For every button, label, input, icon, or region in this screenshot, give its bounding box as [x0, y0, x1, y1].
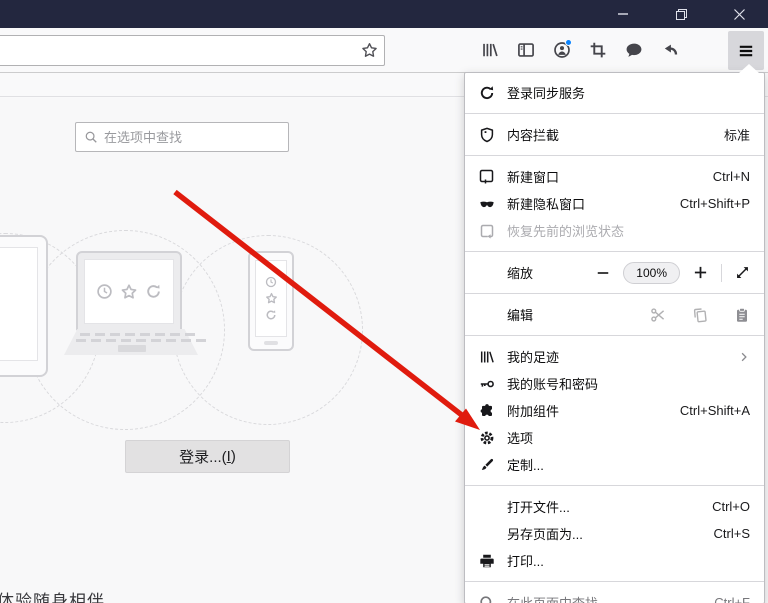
- menu-item-restore-session[interactable]: 恢复先前的浏览状态: [465, 217, 764, 244]
- content-blocking-level: 标准: [724, 125, 750, 144]
- menu-item-label: 定制...: [507, 455, 750, 474]
- new-window-icon: [479, 169, 495, 185]
- menu-shortcut: Ctrl+O: [712, 499, 750, 514]
- menu-item-label: 新建窗口: [507, 167, 713, 186]
- close-button[interactable]: [710, 0, 768, 28]
- menu-item-label: 另存页面为...: [507, 524, 714, 543]
- menu-item-label: 选项: [507, 428, 750, 447]
- menu-item-zoom: 缩放 100%: [465, 259, 764, 286]
- sync-promo-text: 体验随身相伴: [0, 587, 105, 603]
- library-icon: [479, 349, 495, 365]
- menu-shortcut: Ctrl+S: [714, 526, 750, 541]
- menu-separator: [465, 293, 764, 294]
- menu-item-label: 内容拦截: [507, 125, 724, 144]
- account-notification-dot: [565, 39, 572, 46]
- menu-item-label: 登录同步服务: [507, 83, 750, 102]
- pocket-button[interactable]: [619, 34, 648, 66]
- puzzle-icon: [479, 403, 495, 419]
- sync-icon: [479, 85, 495, 101]
- laptop-illustration: [76, 251, 182, 331]
- menu-separator: [465, 155, 764, 156]
- menu-notch: [739, 64, 759, 73]
- browser-window: 登录...(I) 体验随身相伴 登录同步服务 内容拦截 标准 新建窗口 Ctrl…: [0, 0, 768, 603]
- sidebar-icon: [517, 41, 535, 59]
- menu-item-customize[interactable]: 定制...: [465, 451, 764, 478]
- clock-icon: [265, 276, 277, 288]
- hamburger-icon: [737, 42, 755, 60]
- menu-separator: [465, 581, 764, 582]
- zoom-icon-spacer: [479, 265, 495, 281]
- no-icon: [479, 526, 495, 542]
- private-mask-icon: [479, 196, 495, 212]
- fullscreen-button[interactable]: [735, 265, 750, 280]
- submenu-chevron-icon: [738, 351, 750, 363]
- menu-item-label: 缩放: [507, 263, 596, 282]
- account-button[interactable]: [547, 34, 576, 66]
- library-icon: [481, 41, 499, 59]
- printer-icon: [479, 553, 495, 569]
- sync-devices-illustration: [0, 216, 400, 406]
- star-icon: [120, 283, 138, 301]
- menu-item-content-blocking[interactable]: 内容拦截 标准: [465, 121, 764, 148]
- menu-shortcut: Ctrl+Shift+P: [680, 196, 750, 211]
- menu-item-edit: 编辑: [465, 301, 764, 328]
- zoom-level[interactable]: 100%: [623, 262, 680, 284]
- bookmark-star-icon: [361, 42, 378, 59]
- title-bar: [0, 0, 768, 28]
- undo-arrow-icon: [661, 41, 679, 59]
- restore-window-icon: [675, 8, 688, 21]
- paste-button[interactable]: [734, 307, 750, 323]
- menu-separator: [465, 485, 764, 486]
- gear-icon: [479, 430, 495, 446]
- window-controls: [594, 0, 768, 28]
- menu-item-open-file[interactable]: 打开文件... Ctrl+O: [465, 493, 764, 520]
- minimize-icon: [617, 8, 629, 20]
- sidebar-button[interactable]: [511, 34, 540, 66]
- menu-item-label: 新建隐私窗口: [507, 194, 680, 213]
- phone-home-button: [264, 341, 278, 345]
- phone-illustration: [248, 251, 294, 351]
- search-icon: [84, 130, 98, 144]
- cut-button[interactable]: [650, 307, 666, 323]
- tablet-illustration: [0, 235, 48, 377]
- options-search[interactable]: [75, 122, 289, 152]
- sync-icon: [145, 283, 162, 300]
- restore-session-icon: [479, 223, 495, 239]
- restore-button[interactable]: [652, 0, 710, 28]
- options-search-input[interactable]: [104, 130, 280, 145]
- menu-item-label: 打印...: [507, 551, 750, 570]
- menu-item-label: 编辑: [507, 305, 650, 324]
- menu-item-new-private-window[interactable]: 新建隐私窗口 Ctrl+Shift+P: [465, 190, 764, 217]
- key-icon: [479, 376, 495, 392]
- nav-toolbar: [0, 28, 768, 73]
- laptop-touchpad: [118, 345, 146, 352]
- menu-separator: [465, 335, 764, 336]
- signin-label-suffix: ): [231, 448, 236, 465]
- menu-shortcut: Ctrl+N: [713, 169, 750, 184]
- brush-icon: [479, 457, 495, 473]
- menu-item-print[interactable]: 打印...: [465, 547, 764, 574]
- menu-item-label: 在此页面中查找...: [507, 593, 714, 603]
- close-icon: [733, 8, 746, 21]
- menu-item-label: 我的账号和密码: [507, 374, 750, 393]
- bookmark-star-button[interactable]: [354, 37, 384, 65]
- no-icon: [479, 499, 495, 515]
- zoom-out-button[interactable]: [596, 266, 610, 280]
- shield-icon: [479, 127, 495, 143]
- menu-item-addons[interactable]: 附加组件 Ctrl+Shift+A: [465, 397, 764, 424]
- menu-item-label: 我的足迹: [507, 347, 738, 366]
- divider: [721, 264, 722, 282]
- menu-shortcut: Ctrl+F: [714, 595, 750, 603]
- minimize-button[interactable]: [594, 0, 652, 28]
- menu-item-label: 附加组件: [507, 401, 680, 420]
- star-icon: [265, 292, 278, 305]
- copy-button[interactable]: [692, 307, 708, 323]
- sync-icon: [265, 309, 277, 321]
- clock-icon: [96, 283, 113, 300]
- screenshot-crop-icon: [589, 41, 607, 59]
- signin-label-prefix: 登录...(: [179, 446, 227, 467]
- app-menu: 登录同步服务 内容拦截 标准 新建窗口 Ctrl+N 新建隐私窗口 Ctrl+S…: [464, 72, 765, 603]
- undo-button[interactable]: [655, 34, 684, 66]
- menu-item-sync[interactable]: 登录同步服务: [465, 79, 764, 106]
- toolbar-buttons: [475, 34, 684, 66]
- menu-item-new-window[interactable]: 新建窗口 Ctrl+N: [465, 163, 764, 190]
- menu-item-label: 恢复先前的浏览状态: [507, 221, 750, 240]
- menu-item-library[interactable]: 我的足迹: [465, 343, 764, 370]
- menu-item-options[interactable]: 选项: [465, 424, 764, 451]
- address-bar[interactable]: [0, 35, 385, 66]
- library-button[interactable]: [475, 34, 504, 66]
- signin-button[interactable]: 登录...(I): [125, 440, 290, 473]
- address-input[interactable]: [0, 36, 354, 65]
- menu-shortcut: Ctrl+Shift+A: [680, 403, 750, 418]
- menu-separator: [465, 113, 764, 114]
- search-icon: [479, 595, 495, 603]
- screenshot-button[interactable]: [583, 34, 612, 66]
- menu-item-find-in-page[interactable]: 在此页面中查找... Ctrl+F: [465, 589, 764, 603]
- menu-separator: [465, 251, 764, 252]
- speech-bubble-icon: [625, 41, 643, 59]
- zoom-in-button[interactable]: [693, 265, 708, 280]
- menu-item-save-page[interactable]: 另存页面为... Ctrl+S: [465, 520, 764, 547]
- edit-icon-spacer: [479, 307, 495, 323]
- menu-item-label: 打开文件...: [507, 497, 712, 516]
- menu-item-logins[interactable]: 我的账号和密码: [465, 370, 764, 397]
